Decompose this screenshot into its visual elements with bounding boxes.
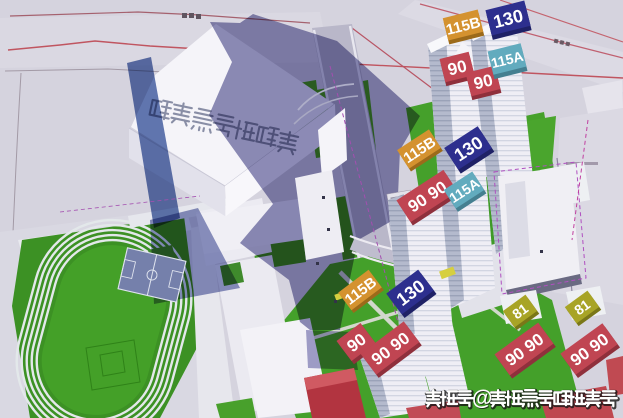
svg-text:@: @ xyxy=(472,387,492,410)
